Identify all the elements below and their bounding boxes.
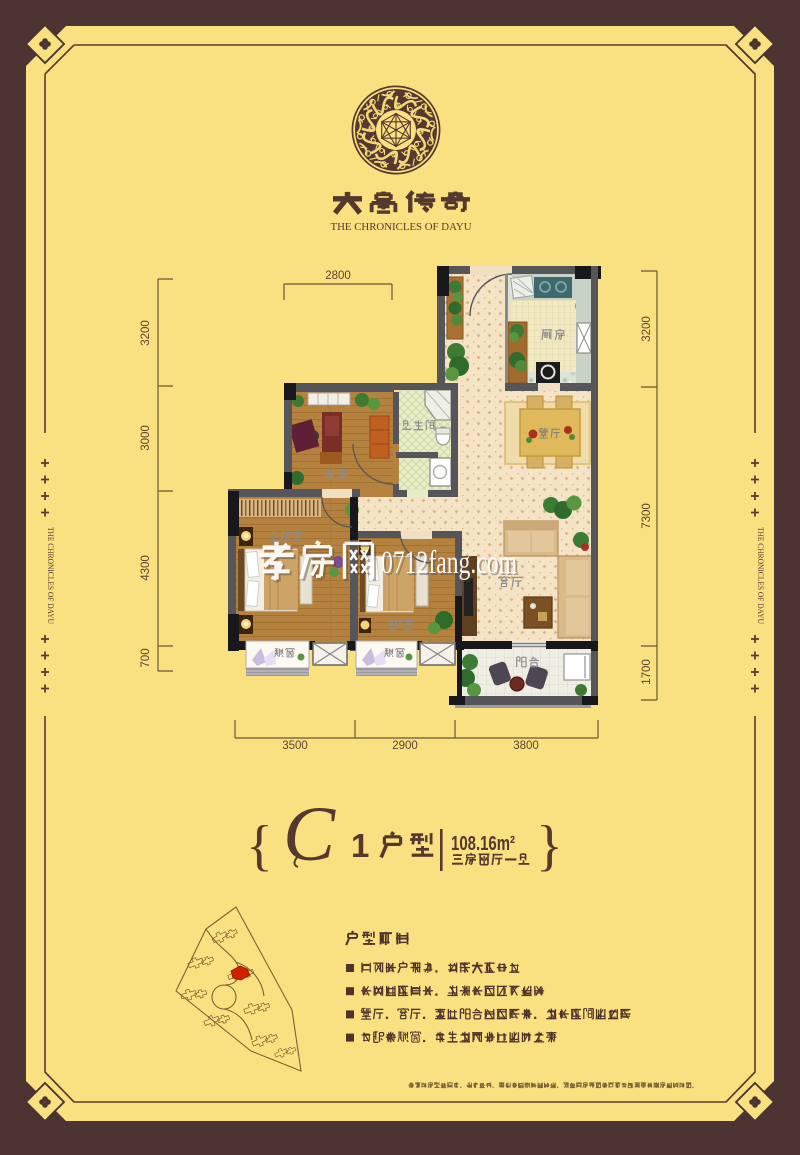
svg-text:4300: 4300	[140, 555, 152, 581]
svg-text:3000: 3000	[140, 425, 152, 451]
svg-text:1: 1	[351, 827, 369, 864]
svg-text:0712fang.com: 0712fang.com	[381, 545, 517, 581]
svg-text:3800: 3800	[513, 740, 539, 752]
svg-text:C: C	[283, 790, 336, 877]
svg-text:THE CHRONICLES OF DAYU: THE CHRONICLES OF DAYU	[46, 527, 55, 624]
svg-text:{: {	[246, 815, 273, 877]
svg-text:1700: 1700	[641, 659, 653, 685]
svg-text:THE CHRONICLES OF DAYU: THE CHRONICLES OF DAYU	[331, 222, 472, 233]
svg-text:108.16m²: 108.16m²	[451, 832, 515, 855]
svg-text:700: 700	[140, 648, 152, 667]
svg-text:2800: 2800	[325, 270, 351, 282]
svg-text:3500: 3500	[282, 740, 308, 752]
svg-text:2900: 2900	[392, 740, 418, 752]
svg-text:}: }	[536, 815, 563, 877]
svg-text:THE CHRONICLES OF DAYU: THE CHRONICLES OF DAYU	[756, 527, 765, 624]
svg-text:3200: 3200	[140, 320, 152, 346]
svg-text:3200: 3200	[641, 316, 653, 342]
svg-text:7300: 7300	[641, 503, 653, 529]
